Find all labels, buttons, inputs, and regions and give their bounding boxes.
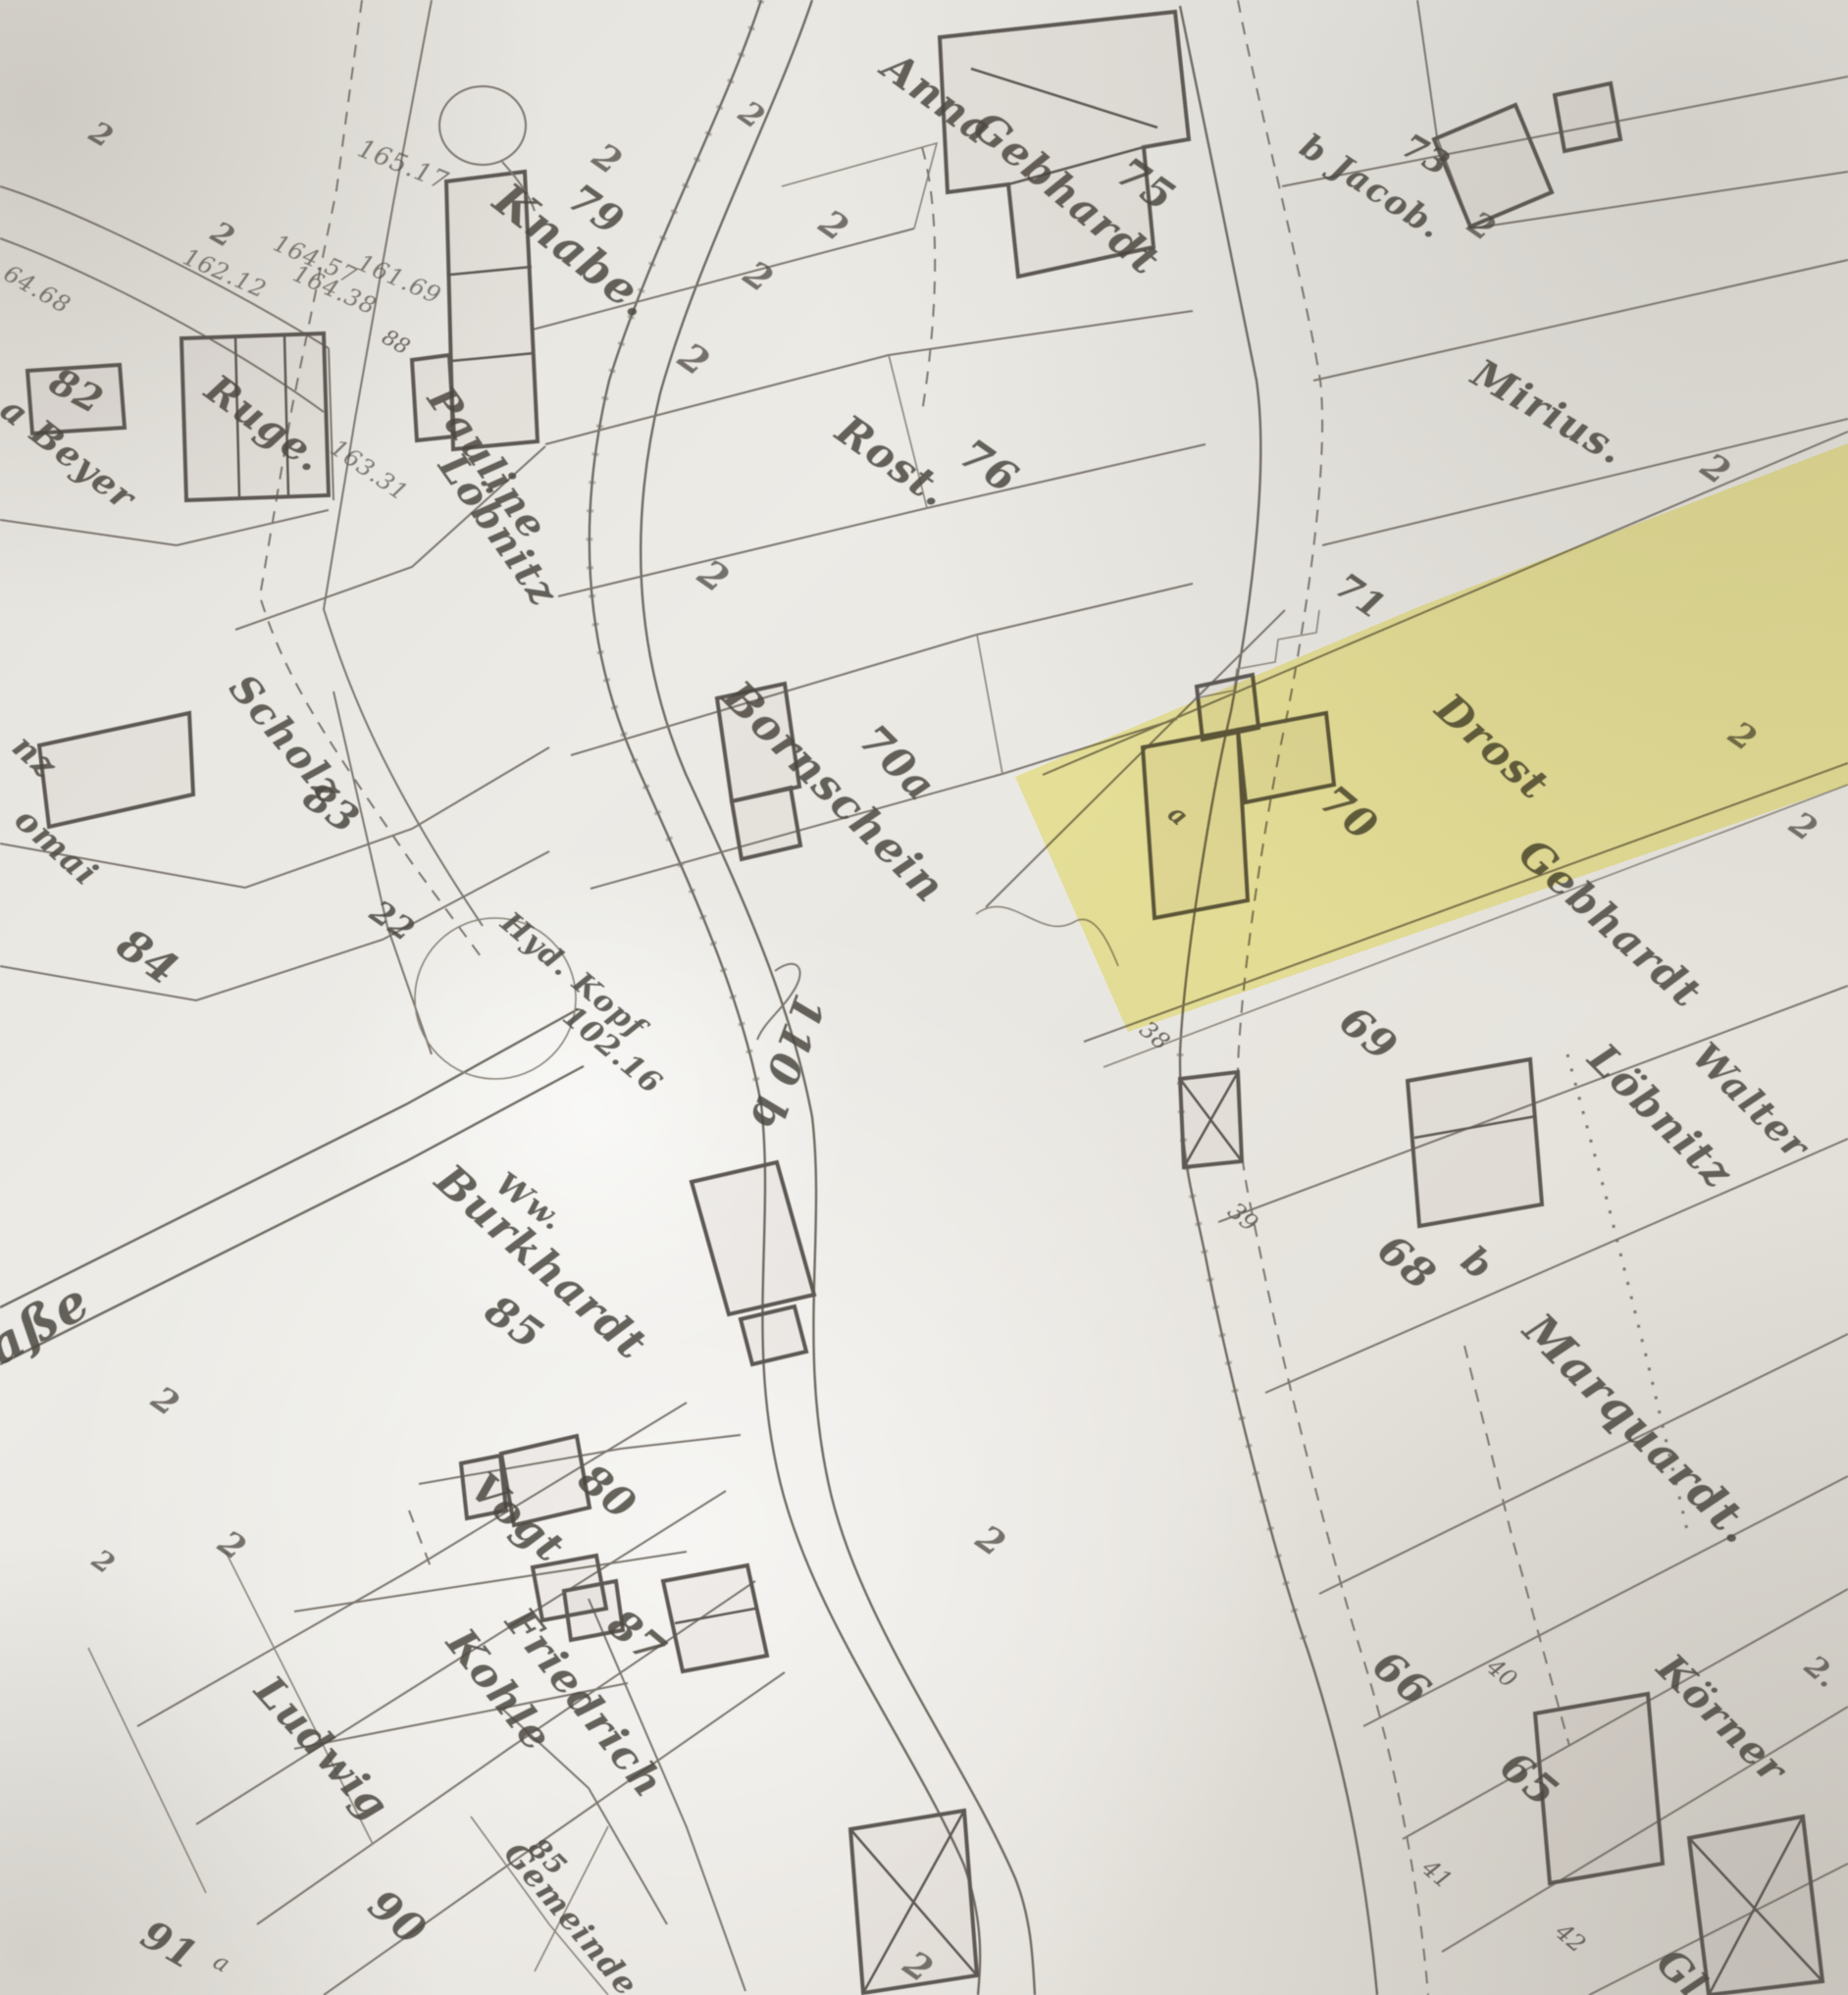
map-photo: Photocopied cadastral map sheet with par… bbox=[0, 0, 1848, 1995]
map-canvas: Knabe.79AnnaGebhardt7573b Jacob.Mirius.7… bbox=[0, 0, 1848, 1995]
